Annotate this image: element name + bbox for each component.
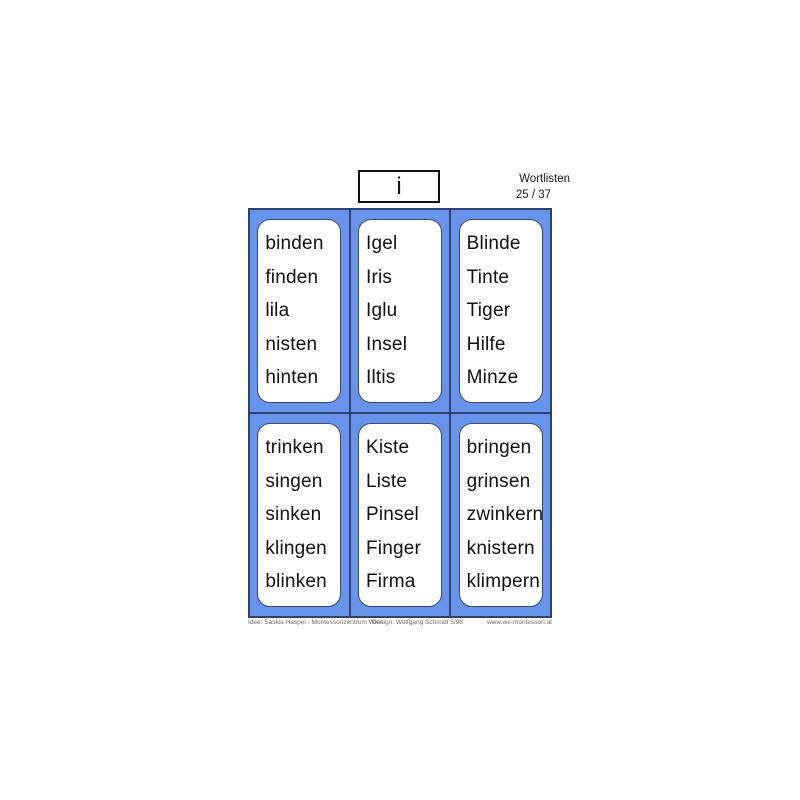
header-meta: Wortlisten 25 / 37 xyxy=(430,171,570,203)
word: Tinte xyxy=(467,261,542,295)
word: Igel xyxy=(366,227,441,261)
word: Minze xyxy=(467,361,542,395)
word: Kiste xyxy=(366,431,441,465)
word-card: bringen grinsen zwinkern knistern klimpe… xyxy=(459,423,543,607)
word: binden xyxy=(265,227,340,261)
word: Iris xyxy=(366,261,441,295)
page-title: Wortlisten xyxy=(430,171,570,187)
website-text: www.we-montessori.at xyxy=(487,619,552,626)
worksheet-page: i Wortlisten 25 / 37 binden finden lila … xyxy=(0,0,800,800)
word: Pinsel xyxy=(366,498,441,532)
grid-cell: Igel Iris Iglu Insel Iltis xyxy=(351,210,450,412)
grid-cell: Blinde Tinte Tiger Hilfe Minze xyxy=(451,210,550,412)
word: Iglu xyxy=(366,294,441,328)
word: Liste xyxy=(366,465,441,499)
letter-label: i xyxy=(396,175,401,199)
word: trinken xyxy=(265,431,340,465)
letter-box: i xyxy=(358,170,440,203)
grid-cell: bringen grinsen zwinkern knistern klimpe… xyxy=(451,414,550,616)
grid-cell: Kiste Liste Pinsel Finger Firma xyxy=(351,414,450,616)
word: grinsen xyxy=(467,465,542,499)
word: knistern xyxy=(467,532,542,566)
word-card: binden finden lila nisten hinten xyxy=(257,219,341,403)
card-grid: binden finden lila nisten hinten Igel Ir… xyxy=(248,208,552,618)
word: nisten xyxy=(265,328,340,362)
grid-cell: binden finden lila nisten hinten xyxy=(250,210,349,412)
page-number: 25 / 37 xyxy=(430,187,551,203)
word: klingen xyxy=(265,532,340,566)
word: Tiger xyxy=(467,294,542,328)
word: klimpern xyxy=(467,565,542,599)
word: blinken xyxy=(265,565,340,599)
word-card: Kiste Liste Pinsel Finger Firma xyxy=(358,423,442,607)
word: Blinde xyxy=(467,227,542,261)
word: finden xyxy=(265,261,340,295)
word: sinken xyxy=(265,498,340,532)
credit-idea: Idee: Saskia Haspel - Montessorizentrum … xyxy=(248,619,383,626)
word-card: Blinde Tinte Tiger Hilfe Minze xyxy=(459,219,543,403)
word: zwinkern xyxy=(467,498,542,532)
word: bringen xyxy=(467,431,542,465)
footer: Idee: Saskia Haspel - Montessorizentrum … xyxy=(248,619,552,631)
word: Firma xyxy=(366,565,441,599)
word-card: Igel Iris Iglu Insel Iltis xyxy=(358,219,442,403)
grid-cell: trinken singen sinken klingen blinken xyxy=(250,414,349,616)
word: Iltis xyxy=(366,361,441,395)
word: Finger xyxy=(366,532,441,566)
word: hinten xyxy=(265,361,340,395)
word: Hilfe xyxy=(467,328,542,362)
word: lila xyxy=(265,294,340,328)
word-card: trinken singen sinken klingen blinken xyxy=(257,423,341,607)
word: singen xyxy=(265,465,340,499)
credit-design: Design: Wolfgang Schmidt 5/98 xyxy=(372,619,463,626)
word: Insel xyxy=(366,328,441,362)
